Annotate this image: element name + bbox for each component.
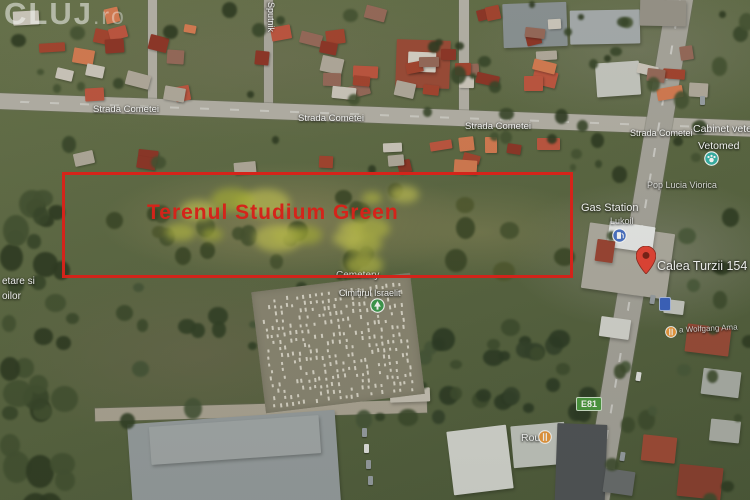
grave-marker xyxy=(305,372,307,376)
car xyxy=(635,372,641,382)
grave-marker xyxy=(384,320,386,324)
grave-marker xyxy=(351,387,353,391)
tree-canopy xyxy=(55,470,76,491)
grave-marker xyxy=(389,361,391,365)
car xyxy=(649,295,655,305)
grave-marker xyxy=(279,305,281,309)
grave-marker xyxy=(277,327,279,331)
tree-canopy xyxy=(589,59,598,69)
tree-canopy xyxy=(612,166,627,183)
grave-marker xyxy=(387,298,389,302)
grave-marker xyxy=(366,309,368,313)
grave-marker xyxy=(332,340,334,344)
grave-marker xyxy=(290,395,292,399)
tree-canopy xyxy=(549,330,569,349)
grave-marker xyxy=(409,366,411,370)
grave-marker xyxy=(321,292,323,296)
grave-marker xyxy=(381,390,383,394)
grave-marker xyxy=(390,368,392,372)
place-label-cabinet-vet[interactable]: Cabinet vete xyxy=(693,123,750,135)
grave-marker xyxy=(336,369,338,373)
grave-marker xyxy=(304,308,306,312)
grave-marker xyxy=(367,322,369,326)
house-roof xyxy=(319,155,334,168)
parcel-label: Terenul Studium Green xyxy=(147,201,399,225)
house-roof xyxy=(166,50,184,65)
grave-marker xyxy=(380,335,382,339)
grave-marker xyxy=(316,300,318,304)
tree-canopy xyxy=(208,307,227,325)
grave-marker xyxy=(295,330,297,334)
grave-marker xyxy=(343,368,345,372)
grave-marker xyxy=(353,360,355,364)
house-roof xyxy=(688,82,708,97)
grave-marker xyxy=(373,320,375,324)
grave-marker xyxy=(411,380,413,384)
grave-marker xyxy=(323,313,325,317)
red-map-pin-icon[interactable] xyxy=(636,246,656,279)
grave-marker xyxy=(389,306,391,310)
grave-marker xyxy=(394,347,396,351)
grave-marker xyxy=(397,376,399,380)
grave-marker xyxy=(273,396,275,400)
grave-marker xyxy=(320,385,322,389)
tree-canopy xyxy=(500,131,512,144)
tree-canopy xyxy=(62,136,76,153)
house-roof xyxy=(524,76,543,91)
tree-canopy xyxy=(2,406,17,420)
tree-canopy xyxy=(247,91,254,97)
grave-marker xyxy=(282,319,284,323)
grave-marker xyxy=(337,383,339,387)
tree-canopy xyxy=(713,291,728,309)
grave-marker xyxy=(312,370,314,374)
tree-canopy xyxy=(503,387,520,405)
tree-canopy xyxy=(501,319,520,336)
grave-marker xyxy=(321,300,323,304)
grave-marker xyxy=(393,389,395,393)
grave-marker xyxy=(380,383,382,387)
building xyxy=(595,61,641,98)
grave-marker xyxy=(273,299,275,303)
grave-marker xyxy=(273,404,275,408)
grave-marker xyxy=(318,314,320,318)
grave-marker xyxy=(333,390,335,394)
cemetery-label-ro[interactable]: Cimitirul Israelit xyxy=(339,288,401,298)
building xyxy=(676,464,723,500)
grave-marker xyxy=(268,363,270,367)
grave-marker xyxy=(390,312,392,316)
grave-marker xyxy=(406,339,408,343)
house-roof xyxy=(84,63,105,79)
house-roof xyxy=(364,5,387,23)
tree-canopy xyxy=(423,107,432,118)
grave-marker xyxy=(383,355,385,359)
grave-marker xyxy=(335,361,337,365)
address-label-calea-turzii[interactable]: Calea Turzii 154 xyxy=(657,259,747,273)
grave-marker xyxy=(270,376,272,380)
house-roof xyxy=(55,67,74,82)
grave-marker xyxy=(292,402,294,406)
tree-canopy xyxy=(529,1,535,8)
grave-marker xyxy=(366,365,368,369)
tree-canopy xyxy=(184,398,202,419)
grave-marker xyxy=(310,301,312,305)
tree-canopy xyxy=(604,55,611,62)
grave-marker xyxy=(368,328,370,332)
grave-marker xyxy=(389,347,391,351)
tree-canopy xyxy=(450,387,462,400)
tree-canopy xyxy=(499,108,514,121)
grave-marker xyxy=(280,404,282,408)
tree-canopy xyxy=(605,458,619,471)
tree-canopy xyxy=(719,11,726,18)
house-roof xyxy=(506,143,522,155)
tree-canopy xyxy=(577,120,588,132)
grave-marker xyxy=(320,334,322,338)
car xyxy=(619,452,625,462)
grave-marker xyxy=(294,360,296,364)
satellite-map[interactable]: Cemetery Terenul Studium Green Strada Co… xyxy=(0,0,750,500)
grave-marker xyxy=(348,324,350,328)
grave-marker xyxy=(392,283,394,287)
tree-canopy xyxy=(523,403,535,413)
house-roof xyxy=(383,143,403,152)
grave-marker xyxy=(328,396,330,400)
house-roof xyxy=(254,50,270,66)
grave-marker xyxy=(347,354,349,358)
tree-canopy xyxy=(487,339,499,350)
grave-marker xyxy=(398,283,400,287)
grave-marker xyxy=(352,353,354,357)
grave-marker xyxy=(401,311,403,315)
grave-marker xyxy=(404,381,406,385)
grave-marker xyxy=(328,299,330,303)
house-roof xyxy=(419,57,439,67)
grave-marker xyxy=(289,324,291,328)
tree-canopy xyxy=(151,156,167,169)
grave-marker xyxy=(392,334,394,338)
edge-label-fragment-2[interactable]: oilor xyxy=(2,291,21,302)
tree-canopy xyxy=(455,42,465,50)
grave-marker xyxy=(299,308,301,312)
grave-marker xyxy=(286,403,288,407)
grave-marker xyxy=(323,363,325,367)
grave-marker xyxy=(271,326,273,330)
house-roof xyxy=(323,73,341,87)
tree-canopy xyxy=(451,66,467,83)
grave-marker xyxy=(411,388,413,392)
grave-marker xyxy=(356,374,358,378)
tree-canopy xyxy=(571,149,581,160)
grave-marker xyxy=(327,341,329,345)
grave-marker xyxy=(272,340,274,344)
tree-canopy xyxy=(617,17,629,27)
grave-marker xyxy=(367,371,369,375)
grave-marker xyxy=(378,371,380,375)
grave-marker xyxy=(300,379,302,383)
grave-marker xyxy=(404,373,406,377)
watermark-suffix: .ro xyxy=(93,3,126,29)
tree-canopy xyxy=(595,160,603,168)
tree-canopy xyxy=(450,360,462,370)
grave-marker xyxy=(303,343,305,347)
tree-canopy xyxy=(470,73,476,79)
grave-marker xyxy=(299,315,301,319)
tree-canopy xyxy=(722,208,739,227)
grave-marker xyxy=(283,376,285,380)
tree-canopy xyxy=(137,319,148,331)
grave-marker xyxy=(282,326,284,330)
grave-marker xyxy=(296,296,298,300)
grave-marker xyxy=(400,340,402,344)
edge-label-fragment-1[interactable]: etare si xyxy=(2,276,35,287)
grave-marker xyxy=(338,332,340,336)
grave-marker xyxy=(275,311,277,315)
tree-canopy xyxy=(674,91,689,109)
grave-marker xyxy=(351,395,353,399)
grave-marker xyxy=(324,370,326,374)
grave-marker xyxy=(345,339,347,343)
vet-clinic-marker-icon[interactable] xyxy=(704,151,719,171)
grave-marker xyxy=(330,320,332,324)
grave-marker xyxy=(271,370,273,374)
grave-marker xyxy=(402,318,404,322)
grave-marker xyxy=(316,399,318,403)
grave-marker xyxy=(352,309,354,313)
grave-marker xyxy=(343,332,345,336)
tree-canopy xyxy=(248,342,257,350)
grave-marker xyxy=(314,378,316,382)
grave-marker xyxy=(409,372,411,376)
grave-marker xyxy=(337,374,339,378)
grave-marker xyxy=(320,391,322,395)
grave-marker xyxy=(277,334,279,338)
grave-marker xyxy=(347,317,349,321)
tree-canopy xyxy=(343,9,357,22)
grave-marker xyxy=(271,334,273,338)
grave-marker xyxy=(381,342,383,346)
grave-marker xyxy=(332,333,334,337)
grave-marker xyxy=(358,302,360,306)
tree-canopy xyxy=(3,215,29,246)
tree-canopy xyxy=(476,389,491,402)
tree-canopy xyxy=(678,228,695,244)
house-roof xyxy=(441,48,456,59)
car xyxy=(364,444,369,453)
place-label-gas-station[interactable]: Gas Station xyxy=(581,202,638,214)
tree-canopy xyxy=(712,57,728,75)
tree-canopy xyxy=(252,23,266,37)
tree-canopy xyxy=(116,305,133,321)
grave-marker xyxy=(298,358,300,362)
grave-marker xyxy=(387,340,389,344)
tree-canopy xyxy=(478,56,491,67)
grave-marker xyxy=(385,284,387,288)
street-label-cometei-3: Strada Cometei xyxy=(465,121,531,132)
grave-marker xyxy=(393,382,395,386)
food-place-marker-icon[interactable] xyxy=(665,325,677,343)
grave-marker xyxy=(277,389,279,393)
tree-canopy xyxy=(530,347,543,360)
building xyxy=(709,418,741,443)
grave-marker xyxy=(369,336,371,340)
grave-marker xyxy=(325,377,327,381)
grave-marker xyxy=(392,340,394,344)
grave-marker xyxy=(403,325,405,329)
grave-marker xyxy=(395,361,397,365)
car xyxy=(366,460,371,469)
tree-canopy xyxy=(163,25,177,39)
tree-canopy xyxy=(734,414,742,422)
grave-marker xyxy=(362,336,364,340)
house-roof xyxy=(663,68,685,80)
tree-canopy xyxy=(621,417,635,433)
grave-marker xyxy=(340,311,342,315)
grave-marker xyxy=(272,384,274,388)
tree-canopy xyxy=(53,84,62,93)
grave-marker xyxy=(315,349,317,353)
grave-marker xyxy=(322,356,324,360)
tree-canopy xyxy=(132,361,149,377)
e81-road-shield: E81 xyxy=(576,397,602,411)
grave-marker xyxy=(328,291,330,295)
house-roof xyxy=(429,139,453,152)
grave-marker xyxy=(311,307,313,311)
tree-canopy xyxy=(0,244,23,271)
tree-canopy xyxy=(703,493,717,500)
tree-canopy xyxy=(27,234,41,248)
grave-marker xyxy=(300,366,302,370)
grave-marker xyxy=(384,363,386,367)
tree-canopy xyxy=(489,81,502,93)
grave-marker xyxy=(364,358,366,362)
grave-marker xyxy=(307,330,309,334)
grave-marker xyxy=(362,379,364,383)
tree-canopy xyxy=(578,14,584,20)
grave-marker xyxy=(328,355,330,359)
tree-canopy xyxy=(133,283,144,292)
grave-marker xyxy=(298,401,300,405)
house-roof xyxy=(422,84,439,96)
house-roof xyxy=(548,18,562,29)
grave-marker xyxy=(299,352,301,356)
tree-canopy xyxy=(547,134,557,144)
building xyxy=(446,425,513,496)
grave-marker xyxy=(327,390,329,394)
tree-canopy xyxy=(398,409,418,426)
grave-marker xyxy=(291,304,293,308)
grave-marker xyxy=(383,349,385,353)
grave-marker xyxy=(368,379,370,383)
grave-marker xyxy=(338,390,340,394)
tree-canopy xyxy=(499,351,510,361)
food-place-marker-icon-2[interactable] xyxy=(538,430,552,449)
tree-canopy xyxy=(570,164,577,171)
grave-marker xyxy=(292,352,294,356)
grave-marker xyxy=(363,302,365,306)
grave-marker xyxy=(401,353,403,357)
grave-marker xyxy=(301,330,303,334)
tree-canopy xyxy=(435,39,443,46)
grave-marker xyxy=(287,353,289,357)
grave-marker xyxy=(407,359,409,363)
grave-marker xyxy=(309,294,311,298)
tree-canopy xyxy=(2,315,16,332)
grave-marker xyxy=(279,347,281,351)
grave-marker xyxy=(361,331,363,335)
tree-canopy xyxy=(45,294,66,312)
grave-marker xyxy=(280,311,282,315)
place-label-lukoil[interactable]: Lukoil xyxy=(610,216,634,226)
grave-marker xyxy=(267,356,269,360)
grave-marker xyxy=(281,362,283,366)
building xyxy=(641,434,678,463)
tree-canopy xyxy=(276,16,285,25)
tree-canopy xyxy=(432,410,445,424)
grave-marker xyxy=(310,357,312,361)
grave-marker xyxy=(361,373,363,377)
grave-marker xyxy=(335,354,337,358)
tree-canopy xyxy=(77,82,85,90)
grave-marker xyxy=(406,345,408,349)
house-roof xyxy=(183,24,196,34)
tree-canopy xyxy=(191,323,204,338)
grave-marker xyxy=(263,320,265,324)
place-label-pop-lucia[interactable]: Pop Lucia Viorica xyxy=(647,180,717,190)
building xyxy=(640,0,686,26)
grave-marker xyxy=(286,303,288,307)
tree-canopy xyxy=(272,136,279,144)
tree-canopy xyxy=(564,28,572,36)
grave-marker xyxy=(308,344,310,348)
grave-marker xyxy=(352,302,354,306)
park-tree-marker-icon[interactable] xyxy=(370,298,385,318)
house-roof xyxy=(105,39,125,54)
grave-marker xyxy=(283,332,285,336)
grave-marker xyxy=(368,385,370,389)
grave-marker xyxy=(305,323,307,327)
grave-marker xyxy=(355,331,357,335)
grave-marker xyxy=(309,386,311,390)
tree-canopy xyxy=(51,386,78,412)
grave-marker xyxy=(306,315,308,319)
house-roof xyxy=(85,87,105,101)
grave-marker xyxy=(352,345,354,349)
grave-marker xyxy=(278,382,280,386)
grave-marker xyxy=(284,395,286,399)
grave-marker xyxy=(295,338,297,342)
grave-marker xyxy=(323,306,325,310)
grave-marker xyxy=(386,376,388,380)
building xyxy=(555,423,608,500)
grave-marker xyxy=(399,382,401,386)
fuel-station-marker-icon[interactable] xyxy=(612,228,627,248)
car xyxy=(700,96,705,105)
grave-marker xyxy=(360,315,362,319)
grave-marker xyxy=(289,331,291,335)
grave-marker xyxy=(338,325,340,329)
watermark-name: CLUJ xyxy=(4,0,93,31)
grave-marker xyxy=(346,304,348,308)
street-label-cometei-4: Strada Cometei xyxy=(630,128,693,138)
building xyxy=(602,468,635,496)
grave-marker xyxy=(274,305,276,309)
grave-marker xyxy=(268,305,270,309)
grave-marker xyxy=(345,395,347,399)
tree-canopy xyxy=(707,370,718,383)
parcel-outline xyxy=(62,172,573,278)
